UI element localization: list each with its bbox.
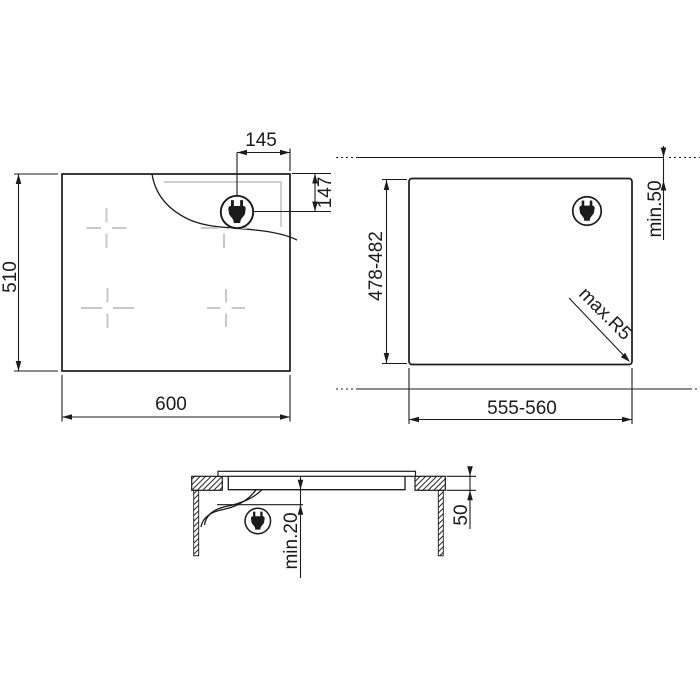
- arrowhead-left: [409, 417, 419, 423]
- power-plug-icon: [573, 197, 602, 226]
- dim-min50: min.50: [645, 146, 666, 240]
- dim-label-478-482: 478-482: [366, 231, 387, 301]
- power-plug-icon: [245, 508, 271, 534]
- burner-markers: [81, 208, 247, 328]
- worktop-cutout-view: 478-482 555-560 min.50 max.R5: [336, 146, 700, 424]
- worktop-section-left: [192, 476, 223, 490]
- dim-555-560: 555-560: [409, 368, 632, 424]
- power-plug-icon: [221, 196, 253, 228]
- dim-50: 50: [447, 466, 477, 529]
- arrowhead-right: [622, 417, 632, 423]
- hob-glass-plate: [218, 471, 416, 476]
- arrowhead-up: [16, 174, 22, 184]
- arrowhead-down: [16, 361, 22, 371]
- dim-label-50: 50: [451, 504, 472, 525]
- worktop-section-right: [415, 476, 445, 490]
- dim-label-555-560: 555-560: [487, 398, 557, 419]
- dim-147: 147: [292, 174, 336, 212]
- section-view: min.20 50: [192, 466, 476, 578]
- hob-installation-diagram: 145 147 510 600: [0, 0, 700, 700]
- dim-label-147: 147: [315, 177, 336, 209]
- dim-600: 600: [62, 375, 290, 422]
- cabinet-wall-right: [438, 490, 443, 556]
- dim-label-min20: min.20: [281, 512, 302, 569]
- arrowhead-up: [467, 490, 473, 500]
- arrowhead-up: [384, 180, 390, 190]
- burner-cross-front-left: [81, 288, 134, 328]
- arrowhead-down: [384, 353, 390, 363]
- dim-label-145: 145: [245, 130, 277, 151]
- diagram-canvas: 145 147 510 600: [0, 0, 700, 700]
- cabinet-wall-left: [194, 490, 199, 556]
- hob-top-view: 145 147 510 600: [0, 130, 336, 422]
- arrowhead-left: [62, 414, 72, 420]
- arrowhead-down: [298, 480, 304, 490]
- dim-145: 145: [237, 130, 290, 171]
- dim-478-482: 478-482: [366, 180, 407, 364]
- hob-outline: [62, 174, 290, 371]
- dim-label-510: 510: [0, 261, 21, 293]
- dim-label-min50: min.50: [645, 180, 666, 237]
- arrowhead-down: [467, 466, 473, 476]
- arrowhead-right: [280, 150, 290, 156]
- arrowhead-right: [280, 414, 290, 420]
- dim-510: 510: [0, 174, 58, 371]
- corner-radius-callout: max.R5: [569, 284, 635, 362]
- burner-cross-rear-left: [87, 208, 127, 248]
- arrowhead-down: [661, 148, 667, 158]
- burner-cross-front-right: [207, 289, 245, 327]
- hob-body: [228, 476, 405, 489]
- dim-label-600: 600: [155, 394, 187, 415]
